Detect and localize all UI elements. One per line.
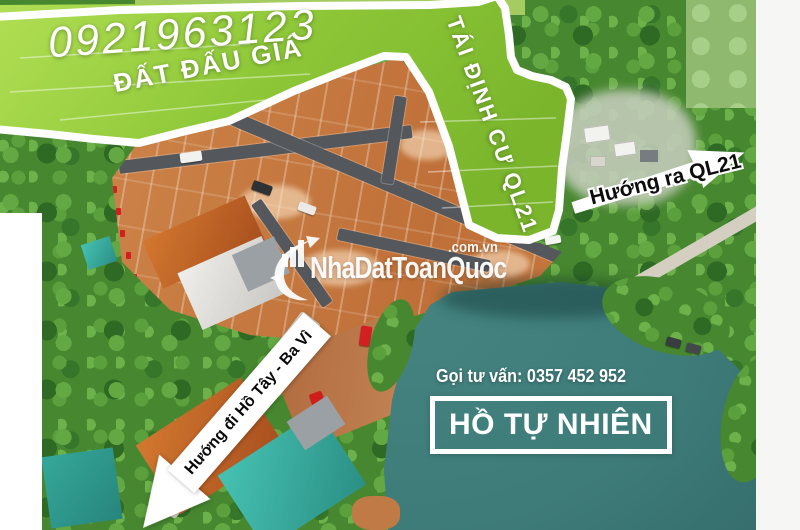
watermark-brand: NhaDatToanQuoc xyxy=(310,250,506,286)
lake-label: HỒ TỰ NHIÊN xyxy=(449,408,653,441)
real-estate-ad-canvas: .com.vn NhaDatToanQuoc 0921963123 ĐẤT ĐẤ… xyxy=(0,0,800,530)
aerial-photo: .com.vn NhaDatToanQuoc 0921963123 ĐẤT ĐẤ… xyxy=(0,0,756,530)
canvas-margin-left xyxy=(0,213,42,530)
canvas-margin-right xyxy=(756,0,800,530)
consultation-phone-label: Gọi tư vấn: 0357 452 952 xyxy=(436,366,626,387)
lake-label-box: HỒ TỰ NHIÊN xyxy=(430,396,672,454)
